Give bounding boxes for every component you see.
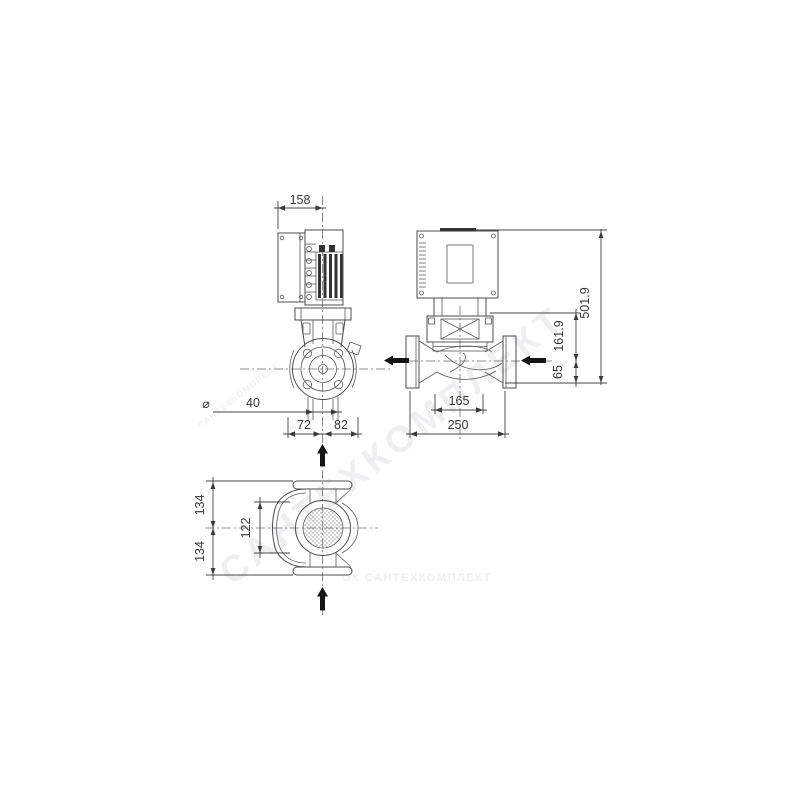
front-motor-ribs (305, 244, 316, 300)
dim-base-height-label: 65 (551, 365, 565, 379)
dim-motor-width-label: 158 (290, 193, 311, 207)
dim-width-inner-label: 122 (239, 518, 253, 539)
side-display-window (447, 245, 473, 283)
watermark-diagonal-small: САНТЕХКОМПЛЕКТ (195, 361, 281, 431)
front-view (240, 196, 392, 462)
watermark-diagonal: САНТЕХКОМПЛЕКТ (212, 298, 574, 593)
front-flange-plate (295, 308, 351, 320)
dim-width-lower-label: 134 (193, 541, 207, 562)
side-terminal-box (417, 231, 498, 298)
front-volute (290, 339, 361, 421)
dim-port-to-port-label: 250 (448, 418, 469, 432)
dim-offset-right-label: 82 (334, 418, 348, 432)
dim-mid-height-label: 161.9 (552, 320, 566, 351)
flow-arrow-outlet-left (384, 356, 409, 366)
front-motor-fins (316, 245, 343, 300)
front-terminal-box (278, 233, 305, 302)
watermark-footer: ОК САНТЕХКОМПЛЕКТ (342, 572, 492, 584)
diameter-symbol: ⌀ (202, 397, 210, 411)
top-fan-grille (303, 508, 343, 548)
flow-arrow-inlet-bottom (317, 444, 328, 467)
dim-width-upper-label: 134 (193, 495, 207, 516)
pump-dimensional-drawing: САНТЕХКОМПЛЕКТ САНТЕХКОМПЛЕКТ ОК САНТЕХК… (0, 0, 800, 800)
dim-offset-left-label: 72 (297, 418, 311, 432)
dim-body-width-label: 165 (449, 394, 470, 408)
side-box-vents (419, 243, 426, 287)
flow-arrow-top-view-bottom (317, 587, 328, 611)
dim-port-diameter-label: 40 (246, 396, 260, 410)
dim-total-height-label: 501.9 (578, 287, 592, 318)
